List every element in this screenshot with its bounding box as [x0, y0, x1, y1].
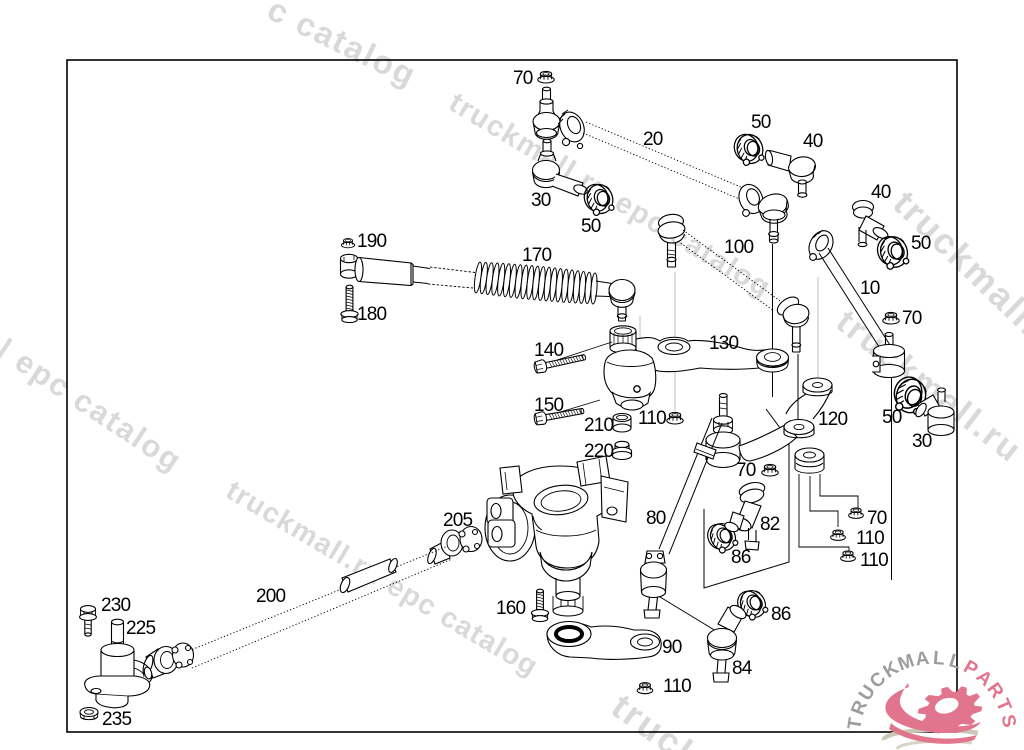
svg-text:200: 200 [256, 586, 286, 607]
svg-text:110: 110 [638, 408, 666, 429]
svg-text:190: 190 [357, 231, 387, 252]
svg-text:70: 70 [902, 308, 922, 329]
svg-text:70: 70 [513, 68, 533, 89]
svg-text:90: 90 [662, 637, 682, 658]
svg-text:230: 230 [101, 595, 131, 616]
svg-text:86: 86 [731, 547, 751, 568]
svg-text:30: 30 [912, 431, 932, 452]
svg-text:120: 120 [818, 409, 848, 430]
svg-text:205: 205 [443, 510, 473, 531]
svg-text:84: 84 [732, 658, 753, 679]
svg-text:50: 50 [882, 407, 902, 428]
svg-text:20: 20 [643, 129, 663, 150]
svg-text:170: 170 [522, 245, 552, 266]
svg-text:180: 180 [357, 304, 387, 325]
svg-text:70: 70 [736, 460, 756, 481]
svg-text:225: 225 [126, 618, 156, 639]
svg-text:50: 50 [581, 216, 601, 237]
svg-text:110: 110 [663, 676, 691, 697]
svg-text:10: 10 [860, 278, 880, 299]
svg-text:40: 40 [871, 182, 891, 203]
svg-text:L: L [932, 648, 946, 670]
svg-text:70: 70 [867, 508, 887, 529]
svg-text:86: 86 [771, 604, 791, 625]
svg-text:110: 110 [856, 528, 884, 549]
svg-text:A: A [914, 648, 931, 671]
svg-text:130: 130 [709, 333, 739, 354]
svg-text:30: 30 [531, 190, 551, 211]
svg-text:80: 80 [646, 508, 666, 529]
svg-text:160: 160 [496, 598, 526, 619]
svg-text:50: 50 [911, 233, 931, 254]
svg-text:140: 140 [534, 340, 564, 361]
svg-text:40: 40 [803, 131, 823, 152]
svg-text:50: 50 [751, 112, 771, 133]
svg-text:210: 210 [584, 415, 614, 436]
svg-text:235: 235 [102, 709, 132, 730]
svg-text:100: 100 [724, 237, 754, 258]
svg-text:82: 82 [760, 514, 780, 535]
svg-text:150: 150 [534, 395, 564, 416]
svg-text:110: 110 [860, 550, 888, 571]
